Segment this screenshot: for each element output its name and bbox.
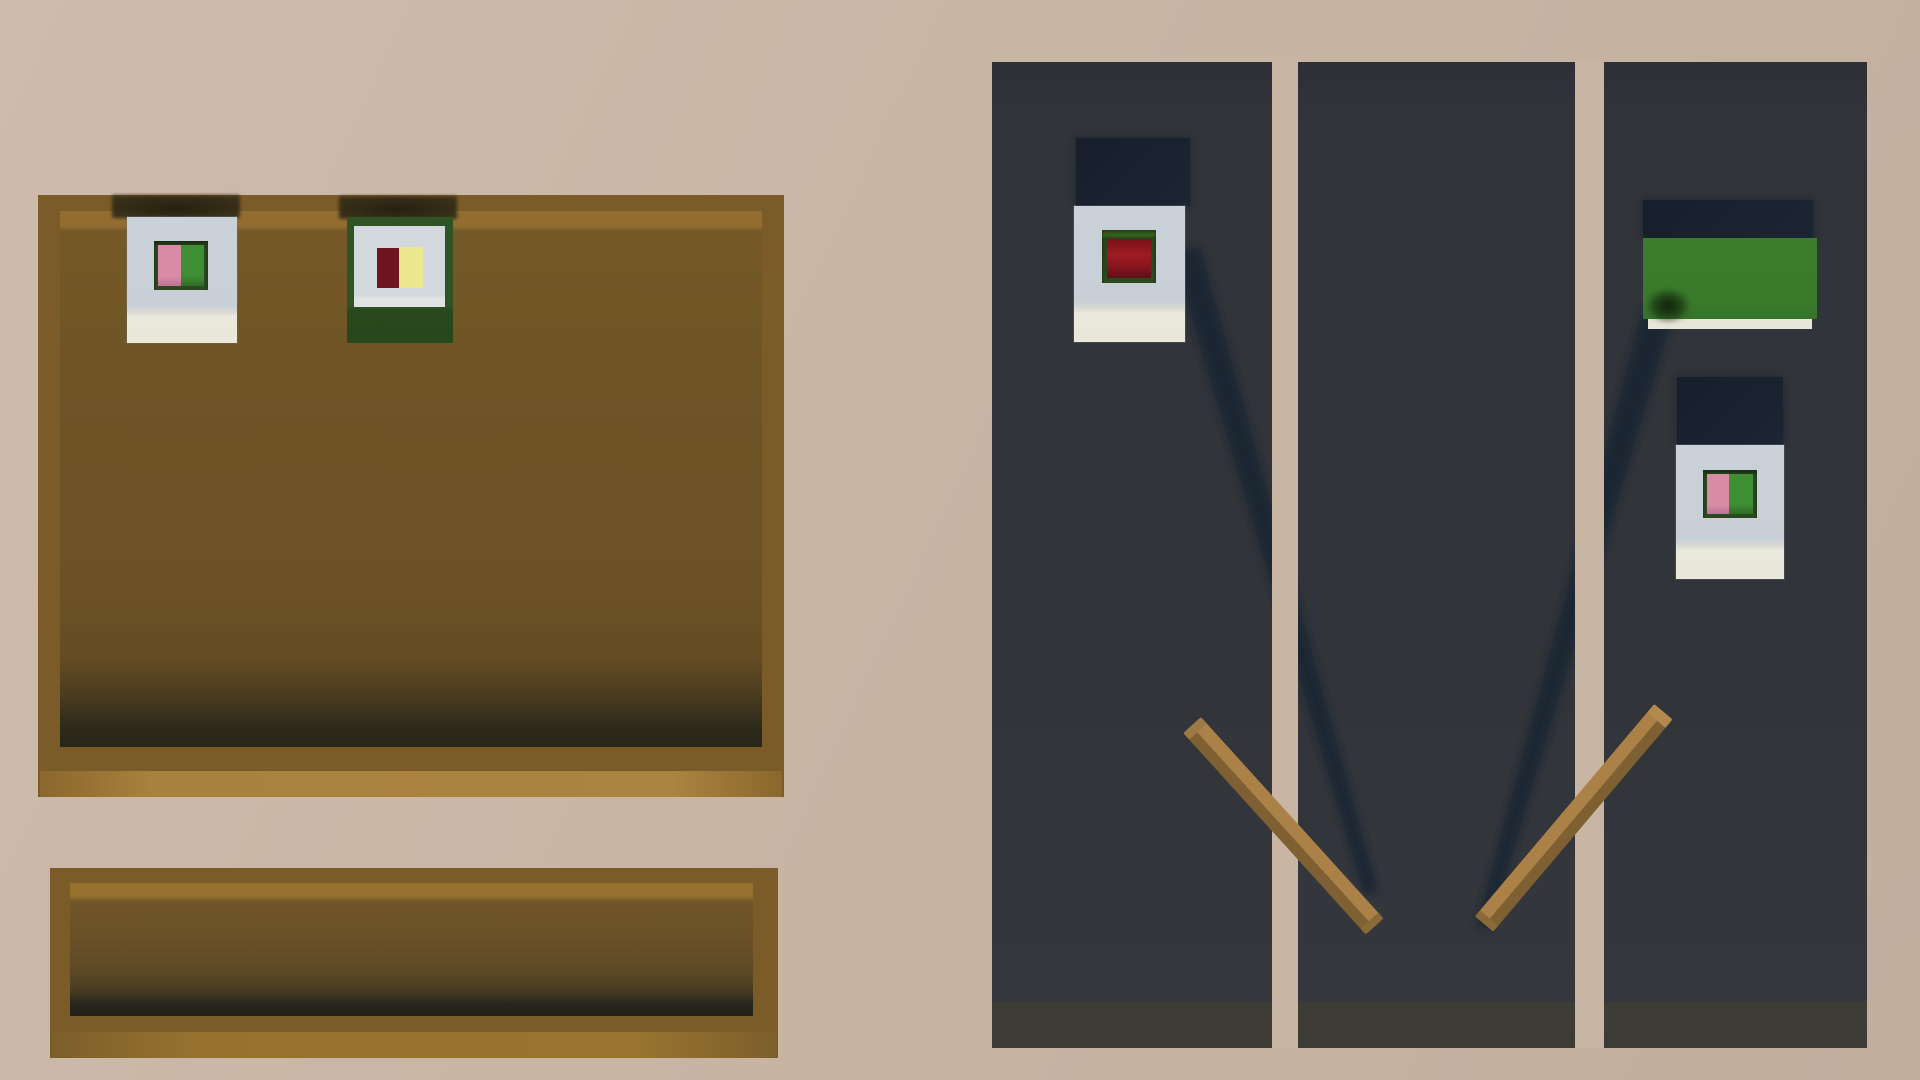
panel-gap-1 (1272, 62, 1298, 1048)
panel1-card-dark-red[interactable] (1074, 206, 1185, 342)
tray-bottom-face (52, 1032, 776, 1058)
picture-frame (1102, 230, 1156, 283)
green-swatch (1729, 474, 1753, 514)
wooden-tray (50, 868, 778, 1058)
green-swatch (181, 245, 204, 286)
dark-red-swatch (377, 248, 399, 288)
scene: { "scene": { "view": "top-down low-poly … (0, 0, 1920, 1080)
panel-gap-2 (1575, 62, 1604, 1048)
stick-shadow-right (1476, 308, 1673, 930)
item-shadow-block (1643, 200, 1813, 238)
pink-swatch (1707, 474, 1729, 514)
hanging-card-red-yellow[interactable] (347, 217, 453, 343)
item-shadow-block (1076, 138, 1190, 206)
item-shadow-block (1677, 377, 1783, 445)
hanging-card-pink-green[interactable] (127, 217, 237, 343)
board-bottom-face (40, 771, 782, 797)
picture-frame (1703, 470, 1757, 518)
card-shadow (339, 196, 457, 219)
picture-frame (154, 241, 208, 290)
panel-group (992, 62, 1867, 1048)
dark-red-picture (1107, 239, 1151, 278)
picture-panel (354, 226, 445, 307)
tray-surface (70, 883, 753, 1016)
contact-shadow-blob (1645, 288, 1691, 324)
wall-board (38, 195, 784, 797)
pink-swatch (158, 245, 181, 286)
card-shadow (112, 195, 240, 218)
panel3-card-pink-green[interactable] (1676, 445, 1784, 579)
yellow-swatch (399, 247, 423, 288)
